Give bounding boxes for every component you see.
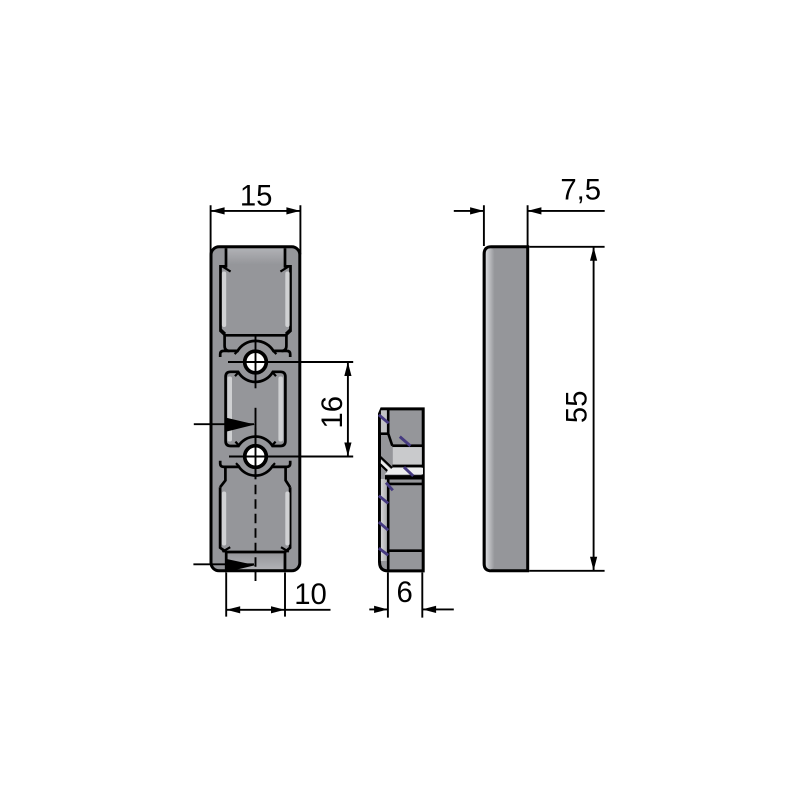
svg-text:15: 15 [240, 180, 273, 213]
svg-text:55: 55 [560, 391, 593, 424]
svg-text:10: 10 [294, 578, 327, 611]
svg-text:16: 16 [316, 396, 349, 429]
svg-text:7,5: 7,5 [560, 173, 601, 206]
svg-text:6: 6 [396, 576, 412, 609]
